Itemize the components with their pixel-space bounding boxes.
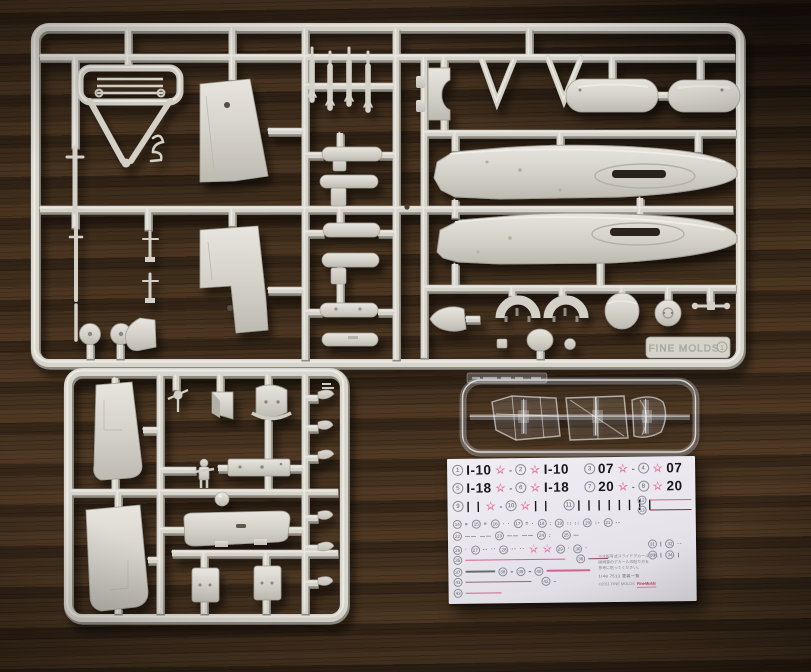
part-oval-hatch [605, 293, 639, 329]
decal-star: ★★ [519, 499, 531, 512]
part-stabilizer [200, 226, 268, 333]
part-cowling-front [252, 385, 291, 419]
sprue-clear [463, 373, 698, 455]
decal-star: ★★ [652, 461, 664, 474]
decal-n: 21 [603, 518, 612, 527]
decal-mark: ·· [520, 546, 525, 552]
decal-star: ★★ [617, 462, 629, 475]
decal-line [466, 592, 502, 594]
decal-mark: = · [525, 520, 534, 526]
decal-n: 28 [499, 545, 508, 554]
decal-mark: · [585, 545, 588, 551]
decal-row: 4142– [453, 577, 557, 587]
decal-row: 12 [637, 495, 691, 505]
decal-mark: ≡ [484, 521, 488, 527]
decal-mark: · · [503, 521, 511, 527]
decal-t: 07 [598, 461, 614, 476]
decal-mark: — [574, 532, 580, 538]
decal-n: 16 [491, 519, 500, 528]
decal-n: 10 [505, 500, 516, 511]
decal-footer: 1/48 7513 塗装一覧 [598, 573, 686, 580]
decal-n: 24 [537, 531, 546, 540]
decal-mark: —— [507, 533, 519, 539]
decal-mark: ·· [491, 546, 496, 552]
part-dome-and-small [497, 329, 576, 351]
decal-n: 3 [584, 463, 595, 474]
decal-dash: - [499, 501, 502, 511]
decal-n: 27 [471, 545, 480, 554]
decal-star: ★★ [494, 463, 506, 476]
decal-n: 7 [584, 481, 595, 492]
embossed-brand-text: FINE MOLDS [648, 344, 719, 355]
part-tail-fin [200, 79, 268, 182]
decal-mark: · [465, 547, 468, 553]
decal-star-inner: ★ [620, 465, 626, 472]
decal-n: 30 [573, 544, 582, 553]
decal-mark: ≡ [465, 521, 469, 527]
decal-line [650, 509, 692, 511]
decal-n: 15 [472, 520, 481, 529]
decal-n: 12 [637, 496, 646, 505]
decal-n: 20 [583, 518, 592, 527]
decal-n: 18 [537, 519, 546, 528]
decal-n: 19 [555, 519, 564, 528]
decal-star-inner: ★ [654, 465, 660, 472]
photo-model-kit-sprues: FINE MOLDS 1 [0, 0, 811, 672]
decal-n: 11 [563, 499, 574, 510]
decal-n: 25 [562, 530, 571, 539]
decal-mark: : [549, 532, 552, 538]
decal-n: 42 [541, 577, 550, 586]
decal-line [546, 569, 590, 571]
decal-bars: | | [467, 500, 482, 512]
decal-star-inner: ★ [544, 546, 550, 553]
decal-note-line: 参考に貼ってください。 [598, 564, 686, 571]
part-float-halves-column [320, 147, 382, 346]
decal-star-inner: ★ [655, 483, 661, 490]
decal-row: 14≡15≡16· ·17= ·18:19:: ::20:-21-- [453, 518, 621, 529]
decal-row: 3536 [453, 554, 608, 565]
decal-dash: - [509, 483, 512, 493]
part-pilot-figure [194, 459, 214, 488]
decal-n: 38 [498, 567, 507, 576]
decal-sheet: 1I-10★★-2★★I-10307★★-4★★075I-18★★-6★★I-1… [447, 456, 697, 604]
part-fuselage-deck [184, 511, 290, 547]
decal-star: ★★ [495, 481, 507, 494]
decal-row: 9| |★★-10★★| |11| | | | | | | | [453, 497, 654, 512]
part-wheel [655, 300, 681, 326]
decal-star: ★★ [528, 543, 539, 555]
part-bulkhead-arches [500, 300, 584, 322]
embossed-brand-plate: FINE MOLDS 1 [646, 337, 730, 358]
decal-row: 3738-39-40 [453, 565, 590, 577]
decal-mark: —— [480, 533, 492, 539]
decal-mark: -- [483, 547, 488, 553]
decal-copyright: ©2011 FINE MOLDS [599, 581, 635, 587]
decal-n: 37 [453, 567, 462, 576]
part-dumbbell [692, 302, 730, 310]
decal-t: 20 [598, 479, 614, 494]
decal-star: ★★ [617, 480, 629, 493]
decal-note: ※水転写式スライドデカールです。 説明書のデカールの貼り方を 参考に貼ってくださ… [598, 553, 687, 588]
decal-n: 8 [638, 481, 649, 492]
decal-dash: - [510, 566, 513, 576]
decal-star-inner: ★ [497, 467, 503, 474]
decal-star-inner: ★ [530, 546, 536, 553]
decal-t: 20 [666, 478, 682, 493]
decal-mark: ·· [677, 541, 682, 547]
part-propeller-small [168, 390, 188, 412]
decal-star: ★★ [542, 543, 553, 555]
part-wing-lower [86, 505, 148, 611]
decal-mark: – [553, 578, 557, 584]
brand-logo: FineMolds [637, 581, 656, 588]
decal-n: 36 [576, 554, 585, 563]
decal-t: 07 [666, 460, 682, 475]
decal-mark: -- [511, 546, 516, 552]
decal-n: 17 [513, 519, 522, 528]
decal-n: 39 [516, 567, 525, 576]
embossed-clear-tag [467, 373, 547, 383]
decal-mark: —— [522, 532, 534, 538]
decal-dash: - [509, 465, 512, 475]
part-fuselage-half-right [434, 145, 737, 199]
part-intake-box [212, 392, 233, 419]
decal-t: I-10 [466, 462, 491, 477]
part-struts-left [67, 136, 163, 340]
part-fuselage-half-left [437, 213, 737, 264]
decal-star-inner: ★ [487, 503, 493, 510]
decal-t: I-18 [466, 480, 491, 495]
decal-n: 35 [453, 556, 462, 565]
decal-mark: —— [465, 533, 477, 539]
decal-dash: - [528, 566, 531, 576]
part-wheel-discs [80, 324, 132, 345]
decal-n: 1 [452, 465, 463, 476]
sprue-b [67, 371, 345, 620]
decal-star: ★★ [485, 499, 497, 512]
decal-star: ★★ [529, 481, 541, 494]
decal-mark: : [549, 520, 552, 526]
decal-n: 2 [515, 464, 526, 475]
part-ball [215, 492, 229, 506]
runner-hole [404, 204, 409, 209]
decal-n: 5 [452, 483, 463, 494]
part-hatch-panels [192, 566, 281, 602]
part-main-float-halves [566, 79, 740, 112]
decal-row: 22————23————24:25— [453, 530, 580, 541]
decal-n: 13 [638, 506, 647, 515]
part-spinner-cone [430, 307, 466, 331]
decal-n: 40 [534, 566, 543, 575]
decal-row: 43 [454, 588, 502, 598]
embossed-badge: 1 [720, 345, 724, 352]
decal-row: 31|32·· [648, 539, 683, 548]
decal-n: 41 [453, 578, 462, 587]
decal-mark: :: :: [567, 520, 580, 526]
part-cowl-small [126, 318, 156, 351]
decal-n: 4 [638, 463, 649, 474]
decal-n: 23 [495, 531, 504, 540]
decal-star-inner: ★ [522, 503, 528, 510]
decal-n: 31 [648, 539, 657, 548]
decal-star-inner: ★ [497, 485, 503, 492]
decal-n: 26 [453, 545, 462, 554]
decal-row: 5I-18★★-6★★I-18720★★-8★★20 [452, 478, 682, 496]
decal-row: 1I-10★★-2★★I-10307★★-4★★07 [452, 460, 682, 478]
decal-row: 13 [638, 505, 692, 515]
decal-n: 14 [453, 520, 462, 529]
part-wing-upper [94, 382, 142, 480]
decal-dash: - [632, 481, 635, 491]
decal-n: 6 [515, 482, 526, 493]
decal-line [465, 558, 565, 561]
decal-t: I-18 [544, 480, 569, 495]
decal-n: 9 [453, 501, 464, 512]
decal-line [465, 581, 531, 583]
decal-star-inner: ★ [532, 484, 538, 491]
decal-star-inner: ★ [532, 466, 538, 473]
decal-star-inner: ★ [620, 483, 626, 490]
decal-t: I-10 [544, 462, 569, 477]
decal-n: 32 [665, 539, 674, 548]
decal-mark: :- [595, 520, 600, 526]
part-catapult-trolley [80, 67, 181, 168]
decal-mark: · [568, 545, 571, 551]
decal-bars: | | [534, 499, 549, 511]
decal-star: ★★ [652, 479, 664, 492]
part-cockpit-floor [228, 459, 290, 476]
decal-line [650, 499, 692, 501]
decal-line [465, 571, 495, 573]
decal-n: 29 [556, 544, 565, 553]
sprue-a: FINE MOLDS 1 [34, 26, 741, 365]
decal-n: 22 [453, 532, 462, 541]
decal-star: ★★ [529, 463, 541, 476]
decal-mark: | [660, 541, 662, 547]
decal-mark: -- [615, 519, 620, 525]
decal-dash: - [632, 463, 635, 473]
decal-n: 43 [454, 589, 463, 598]
